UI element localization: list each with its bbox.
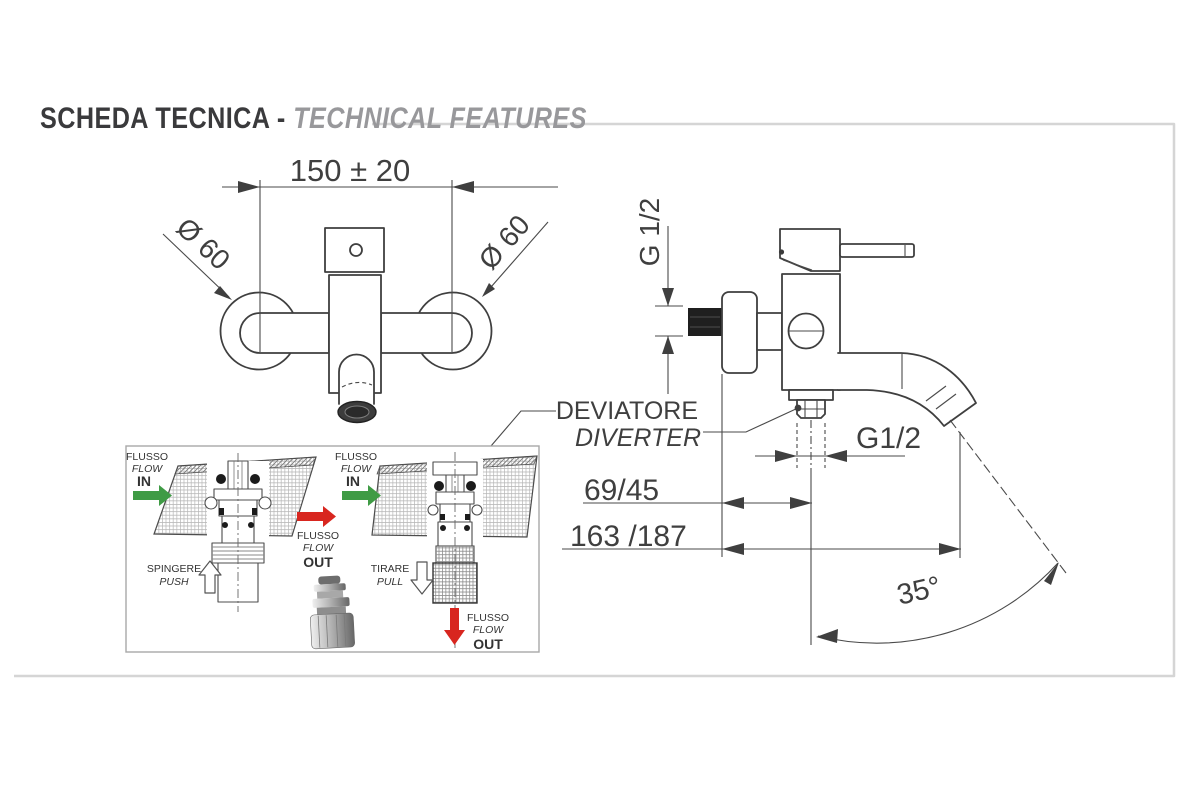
label-outlet-thread: G1/2 — [856, 422, 921, 455]
dim-center-distance: 150 ± 20 — [290, 153, 410, 188]
outlet-collar — [789, 390, 833, 400]
label-diameter-right: Ø 60 — [473, 209, 536, 275]
pull-flow-out-1: FLUSSO — [467, 612, 509, 624]
inset-leader-line — [491, 411, 556, 446]
pull-flow-in-1: FLUSSO — [335, 451, 377, 463]
label-diverter-it: DEVIATORE — [556, 397, 698, 425]
push-flow-out-2: FLOW — [303, 542, 334, 554]
label-spout-angle: 35° — [894, 571, 944, 612]
sheet-title: SCHEDA TECNICA -TECHNICAL FEATURES — [40, 102, 587, 136]
side-union — [757, 313, 782, 350]
front-view: 150 ± 20 Ø 60 Ø 60 — [163, 153, 558, 423]
left-union — [240, 313, 329, 353]
inlet-nipple — [688, 308, 722, 336]
label-diverter-en: DIVERTER — [575, 424, 701, 452]
push-action-1: SPINGERE — [147, 563, 201, 575]
diverter-inset: FLUSSO FLOW IN FLUSSO FLOW OUT SPINGERE … — [126, 446, 539, 652]
pull-action-1: TIRARE — [371, 563, 410, 575]
push-action-2: PUSH — [159, 576, 189, 588]
dim-wall-to-outlet: 69/45 — [584, 474, 659, 507]
pull-flow-in-3: IN — [346, 473, 360, 489]
dim-wall-to-spout: 163 /187 — [570, 520, 687, 553]
push-flow-out-3: OUT — [303, 554, 333, 570]
pull-flow-out-2: FLOW — [473, 624, 504, 636]
side-escutcheon — [722, 292, 757, 373]
pull-flow-out-3: OUT — [473, 636, 503, 652]
dim-arrow-right — [452, 181, 474, 193]
right-union — [381, 313, 472, 353]
technical-sheet-page: 150 ± 20 Ø 60 Ø 60 G 1/2 — [0, 0, 1200, 800]
handle-pivot — [779, 249, 784, 254]
sheet-title-secondary: TECHNICAL FEATURES — [293, 102, 587, 135]
label-inlet-thread: G 1/2 — [634, 198, 665, 266]
dim-arrow-left — [238, 181, 260, 193]
push-flow-in-1: FLUSSO — [126, 451, 168, 463]
sheet-title-primary: SCHEDA TECNICA - — [40, 102, 286, 135]
pull-action-2: PULL — [377, 576, 403, 588]
side-view: G 1/2 — [491, 198, 1066, 645]
cap-hole — [350, 244, 362, 256]
handle-head — [780, 229, 840, 271]
label-diameter-left: Ø 60 — [171, 212, 237, 276]
handle-lever — [840, 244, 914, 257]
push-flow-in-3: IN — [137, 473, 151, 489]
push-flow-out-1: FLUSSO — [297, 530, 339, 542]
